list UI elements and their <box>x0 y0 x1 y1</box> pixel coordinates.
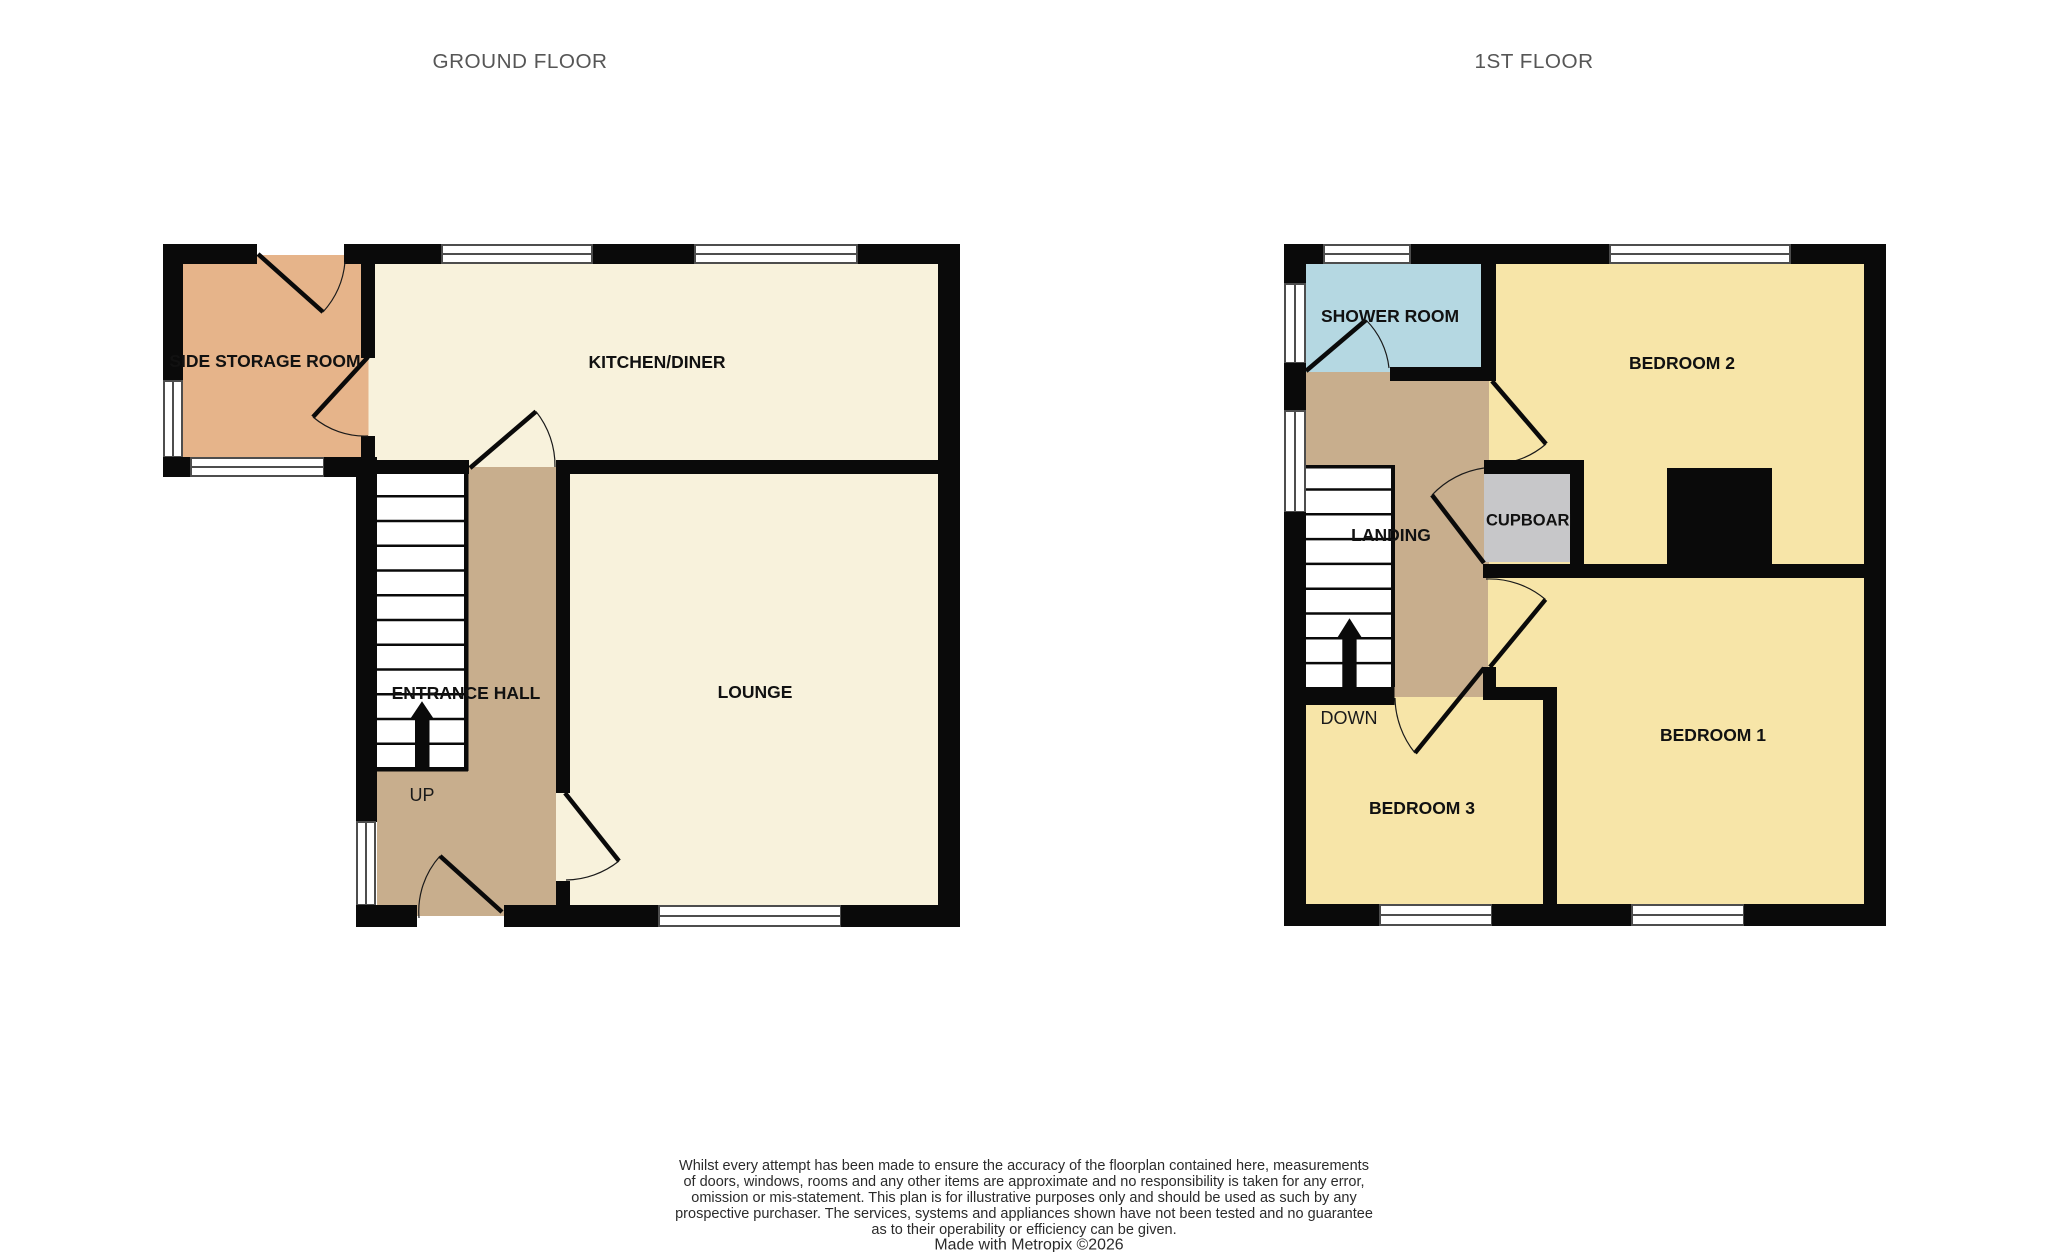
svg-text:ENTRANCE HALL: ENTRANCE HALL <box>392 683 541 703</box>
svg-text:omission or mis-statement. Thi: omission or mis-statement. This plan is … <box>691 1190 1357 1206</box>
svg-text:UP: UP <box>409 785 434 805</box>
svg-text:Made with Metropix ©2026: Made with Metropix ©2026 <box>934 1237 1123 1252</box>
svg-text:KITCHEN/DINER: KITCHEN/DINER <box>588 352 725 372</box>
svg-text:DOWN: DOWN <box>1321 708 1378 728</box>
svg-text:LOUNGE: LOUNGE <box>718 682 793 702</box>
svg-text:SHOWER ROOM: SHOWER ROOM <box>1321 306 1459 326</box>
svg-text:LANDING: LANDING <box>1351 525 1431 545</box>
svg-text:prospective purchaser. The ser: prospective purchaser. The services, sys… <box>675 1206 1373 1222</box>
svg-text:1ST FLOOR: 1ST FLOOR <box>1474 50 1593 73</box>
svg-text:CUPBOARD: CUPBOARD <box>1486 512 1581 530</box>
svg-text:Whilst every attempt has been: Whilst every attempt has been made to en… <box>679 1158 1369 1174</box>
svg-text:BEDROOM 2: BEDROOM 2 <box>1629 353 1735 373</box>
svg-text:BEDROOM 3: BEDROOM 3 <box>1369 798 1475 818</box>
svg-text:BEDROOM 1: BEDROOM 1 <box>1660 725 1766 745</box>
svg-text:SIDE STORAGE ROOM: SIDE STORAGE ROOM <box>169 351 360 371</box>
svg-text:of doors, windows, rooms and a: of doors, windows, rooms and any other i… <box>683 1174 1364 1190</box>
svg-text:GROUND FLOOR: GROUND FLOOR <box>433 50 608 73</box>
